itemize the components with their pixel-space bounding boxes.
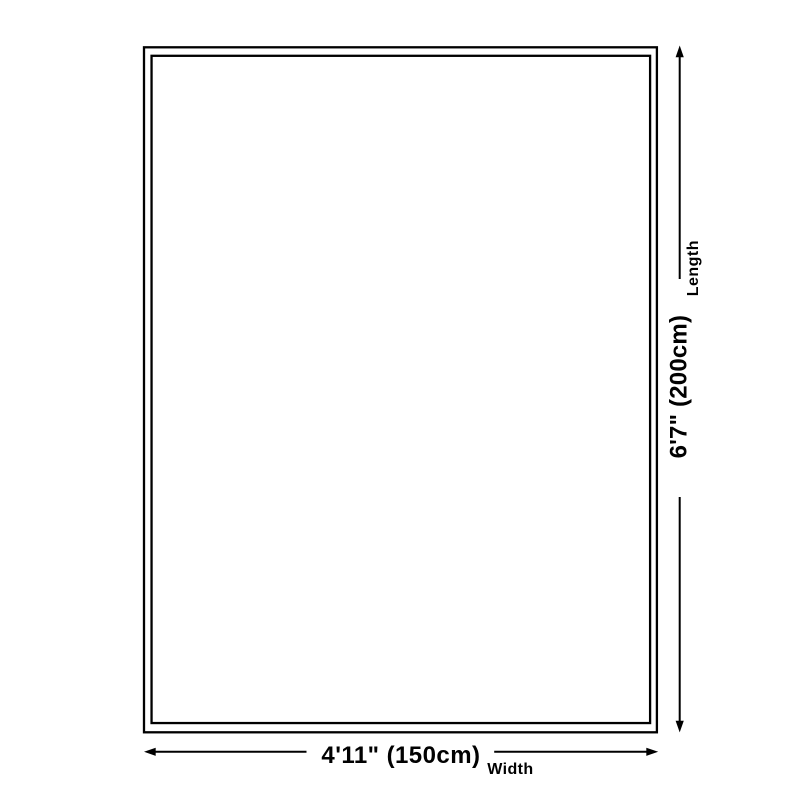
svg-text:Width: Width: [487, 761, 533, 778]
svg-text:6'7" (200cm): 6'7" (200cm): [666, 315, 693, 459]
svg-text:4'11" (150cm): 4'11" (150cm): [321, 742, 480, 769]
svg-text:Length: Length: [685, 240, 702, 296]
